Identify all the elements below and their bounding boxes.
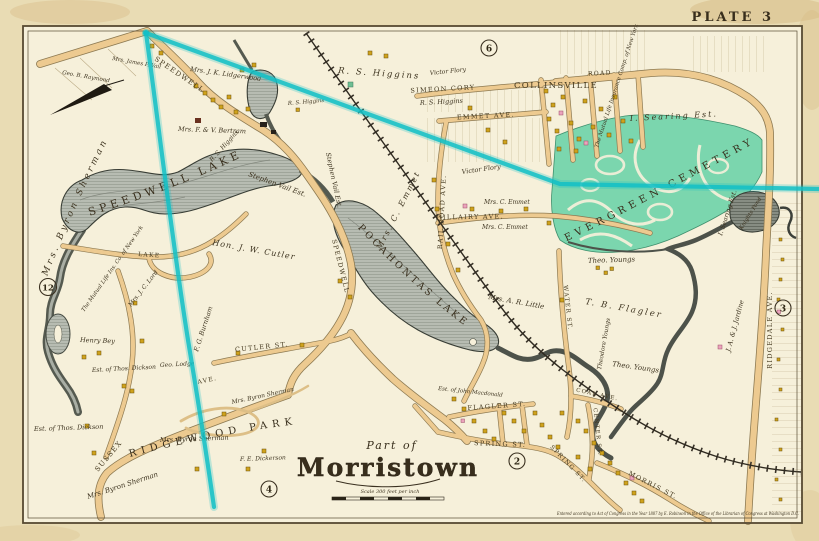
scale-note: Scale 300 feet per inch <box>361 489 420 495</box>
label-youngs-1: Theo. Youngs <box>588 255 636 265</box>
plate-label: PLATE 3 <box>692 10 774 25</box>
scale-bar <box>332 497 444 500</box>
label-ridgedale-ave: RIDGEDALE AVE. <box>766 291 774 369</box>
label-collinsville: COLLINSVILLE <box>514 81 598 91</box>
ref-3: 3 <box>780 305 786 315</box>
label-emmet-small-1: Mrs. C. Emmet <box>483 199 530 206</box>
label-hillairy-ave: HILLAIRY AVE. <box>436 212 504 221</box>
label-road: ROAD <box>588 69 612 77</box>
title-part-of: Part of <box>365 439 417 452</box>
ref-12: 12 <box>42 284 54 294</box>
ref-6: 6 <box>486 45 492 55</box>
label-emmet-small-2: Mrs. C. Emmet <box>481 224 528 231</box>
ref-4: 4 <box>266 486 272 496</box>
copyright-line: Entered according to Act of Congress in … <box>556 511 799 517</box>
title-morristown: Morristown <box>297 453 479 482</box>
ref-2: 2 <box>514 458 520 468</box>
label-henry-bey: Henry Bey <box>79 336 115 345</box>
atlas-map-canvas[interactable]: SPEEDWELL LAKE POCAHONTAS LAKE EVERGREEN… <box>0 0 819 541</box>
